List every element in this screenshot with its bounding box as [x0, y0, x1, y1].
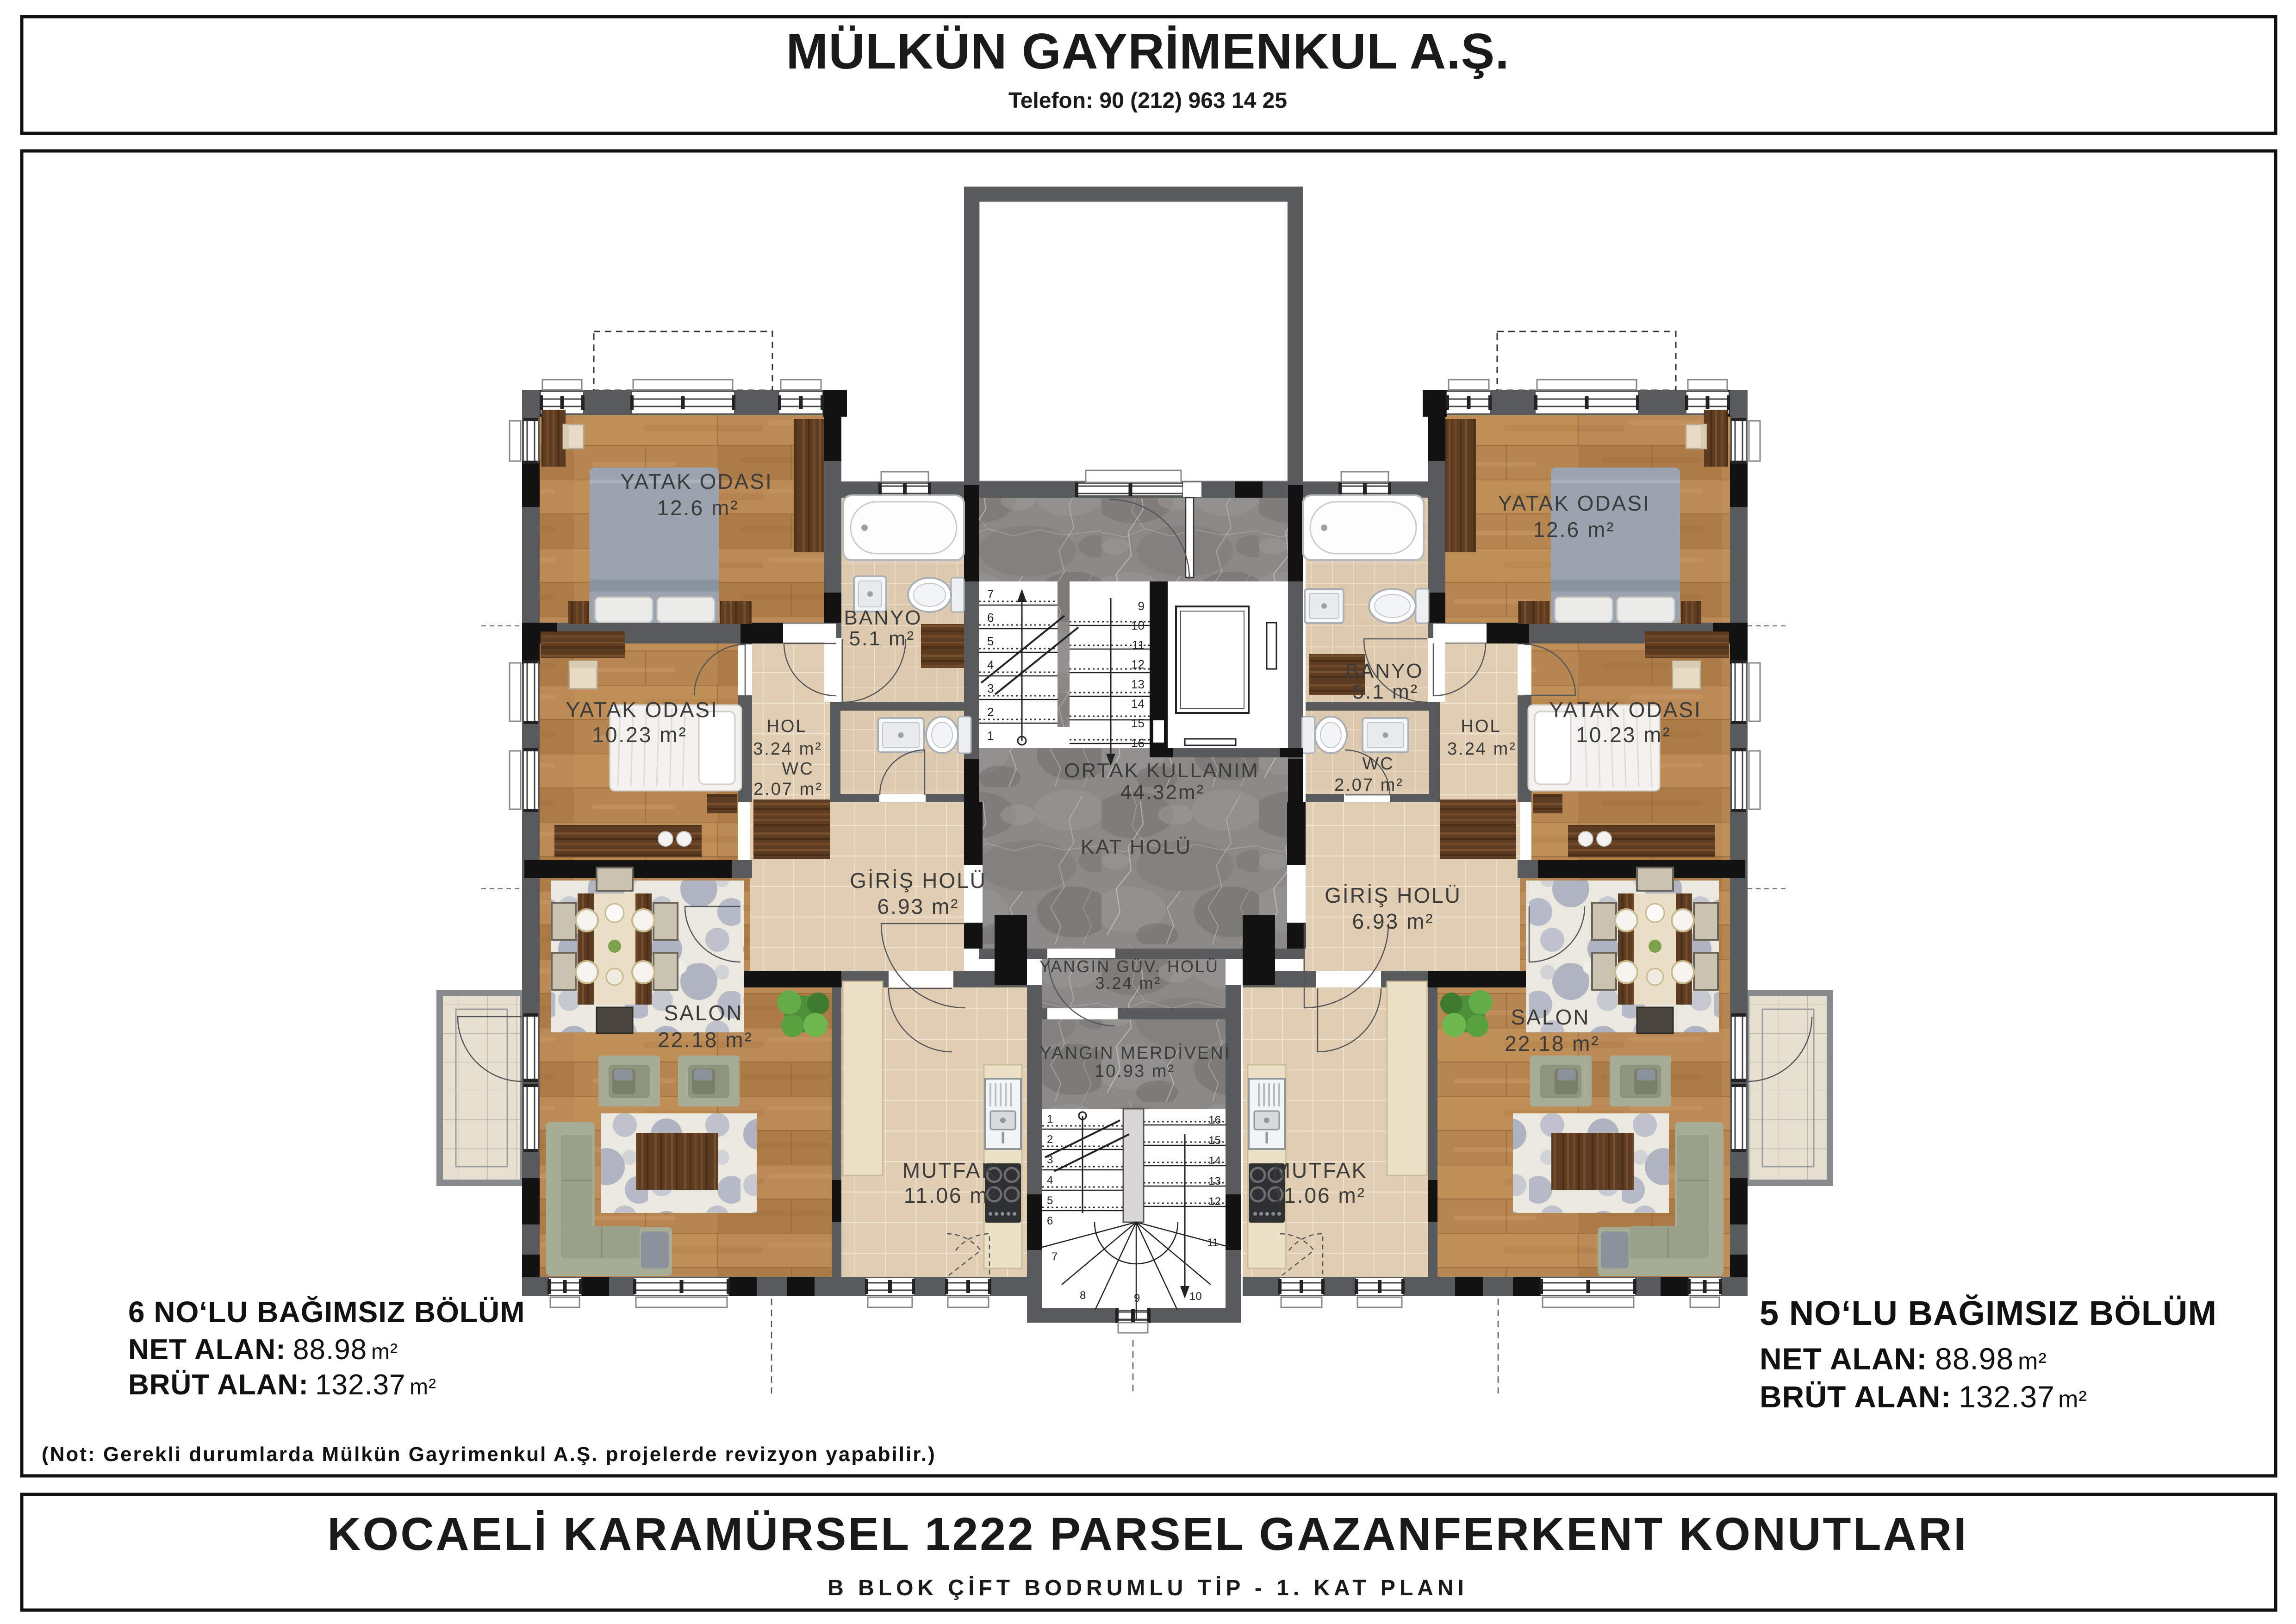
svg-text:16: 16: [1131, 736, 1145, 750]
svg-text:YANGIN GÜV. HOLÜ: YANGIN GÜV. HOLÜ: [1039, 957, 1219, 976]
svg-text:11: 11: [1207, 1237, 1219, 1249]
svg-text:11: 11: [1132, 638, 1145, 652]
svg-text:22.18 m²: 22.18 m²: [1505, 1031, 1600, 1056]
svg-text:6.93 m²: 6.93 m²: [877, 894, 959, 918]
svg-text:SALON: SALON: [664, 1001, 743, 1025]
svg-text:YATAK ODASI: YATAK ODASI: [1549, 698, 1702, 722]
svg-text:10.93 m²: 10.93 m²: [1095, 1062, 1175, 1081]
svg-text:HOL: HOL: [766, 717, 807, 736]
svg-text:MUTFAK: MUTFAK: [1273, 1158, 1368, 1182]
svg-text:10: 10: [1189, 1290, 1202, 1303]
svg-text:4: 4: [1047, 1174, 1053, 1187]
svg-text:BRÜT ALAN:: BRÜT ALAN:: [1760, 1380, 1951, 1414]
svg-text:5.1 m²: 5.1 m²: [849, 627, 915, 650]
svg-text:2.07 m²: 2.07 m²: [753, 780, 823, 799]
svg-text:ORTAK KULLANIM: ORTAK KULLANIM: [1064, 759, 1259, 782]
svg-text:16: 16: [1208, 1114, 1221, 1126]
svg-text:1: 1: [1047, 1113, 1053, 1125]
svg-text:6 NO‘LU BAĞIMSIZ BÖLÜM: 6 NO‘LU BAĞIMSIZ BÖLÜM: [128, 1295, 525, 1329]
svg-text:KOCAELİ KARAMÜRSEL 1222 PARSEL: KOCAELİ KARAMÜRSEL 1222 PARSEL GAZANFERK…: [327, 1508, 1968, 1560]
svg-text:BANYO: BANYO: [1345, 660, 1423, 682]
svg-text:m²: m²: [410, 1375, 436, 1399]
svg-text:NET ALAN:: NET ALAN:: [1760, 1342, 1927, 1376]
svg-text:SALON: SALON: [1511, 1005, 1590, 1029]
svg-text:8: 8: [1080, 1289, 1086, 1302]
svg-text:14: 14: [1208, 1155, 1221, 1167]
svg-text:11.06 m²: 11.06 m²: [1272, 1183, 1366, 1207]
svg-text:MUTFAK: MUTFAK: [902, 1158, 997, 1182]
svg-text:6: 6: [987, 611, 994, 625]
svg-text:3.24 m²: 3.24 m²: [1447, 739, 1517, 759]
svg-text:m²: m²: [371, 1340, 398, 1364]
svg-text:7: 7: [987, 587, 994, 601]
svg-text:6.93 m²: 6.93 m²: [1352, 909, 1434, 933]
svg-text:YANGIN MERDİVENİ: YANGIN MERDİVENİ: [1040, 1043, 1231, 1063]
svg-text:3.24 m²: 3.24 m²: [1095, 974, 1161, 993]
svg-text:7: 7: [1052, 1250, 1058, 1263]
svg-text:132.37: 132.37: [1959, 1380, 2055, 1414]
svg-text:5: 5: [987, 634, 994, 648]
svg-text:B BLOK ÇİFT BODRUMLU TİP - 1.: B BLOK ÇİFT BODRUMLU TİP - 1. KAT PLANI: [828, 1576, 1468, 1600]
svg-text:WC: WC: [1362, 754, 1394, 774]
svg-text:NET ALAN:: NET ALAN:: [128, 1334, 286, 1366]
svg-text:15: 15: [1208, 1134, 1221, 1147]
svg-text:22.18 m²: 22.18 m²: [658, 1028, 753, 1052]
svg-text:m²: m²: [2058, 1386, 2087, 1413]
svg-text:14: 14: [1131, 697, 1145, 711]
svg-text:(Not: Gerekli durumlarda Mülkü: (Not: Gerekli durumlarda Mülkün Gayrimen…: [42, 1443, 936, 1466]
svg-text:GİRİŞ HOLÜ: GİRİŞ HOLÜ: [1325, 883, 1462, 907]
svg-text:12: 12: [1208, 1195, 1221, 1208]
svg-text:3: 3: [987, 681, 994, 695]
svg-text:12: 12: [1131, 657, 1145, 671]
svg-text:5.1 m²: 5.1 m²: [1353, 681, 1419, 703]
svg-text:Telefon: 90 (212) 963 14 25: Telefon: 90 (212) 963 14 25: [1008, 88, 1287, 113]
svg-text:12.6 m²: 12.6 m²: [1533, 518, 1615, 542]
svg-text:15: 15: [1131, 716, 1145, 730]
svg-text:12.6 m²: 12.6 m²: [657, 496, 739, 520]
svg-text:10.23 m²: 10.23 m²: [1576, 723, 1671, 747]
svg-text:BRÜT ALAN:: BRÜT ALAN:: [128, 1369, 309, 1401]
svg-text:9: 9: [1134, 1292, 1140, 1305]
svg-text:2: 2: [1047, 1133, 1053, 1146]
svg-text:10.23 m²: 10.23 m²: [592, 723, 687, 747]
svg-text:6: 6: [1047, 1215, 1053, 1227]
svg-text:5 NO‘LU BAĞIMSIZ BÖLÜM: 5 NO‘LU BAĞIMSIZ BÖLÜM: [1760, 1294, 2217, 1332]
svg-text:YATAK ODASI: YATAK ODASI: [566, 698, 718, 722]
svg-text:m²: m²: [2018, 1348, 2047, 1375]
svg-text:3.24 m²: 3.24 m²: [753, 739, 822, 759]
svg-text:13: 13: [1208, 1175, 1221, 1187]
svg-text:13: 13: [1131, 677, 1145, 691]
svg-text:1: 1: [987, 729, 994, 743]
svg-text:YATAK ODASI: YATAK ODASI: [620, 469, 773, 493]
svg-text:88.98: 88.98: [1935, 1342, 2014, 1376]
svg-text:132.37: 132.37: [315, 1369, 406, 1401]
svg-text:MÜLKÜN GAYRİMENKUL A.Ş.: MÜLKÜN GAYRİMENKUL A.Ş.: [786, 23, 1509, 80]
svg-text:2.07 m²: 2.07 m²: [1334, 775, 1404, 795]
svg-text:WC: WC: [782, 759, 814, 779]
svg-text:BANYO: BANYO: [844, 606, 922, 629]
svg-text:9: 9: [1138, 599, 1145, 613]
svg-text:4: 4: [987, 658, 994, 672]
svg-text:5: 5: [1047, 1194, 1053, 1207]
svg-text:11.06 m²: 11.06 m²: [904, 1183, 997, 1207]
svg-text:HOL: HOL: [1461, 717, 1501, 736]
svg-text:2: 2: [987, 705, 994, 719]
svg-text:88.98: 88.98: [293, 1334, 367, 1366]
svg-text:10: 10: [1131, 618, 1145, 632]
svg-text:44.32m²: 44.32m²: [1120, 781, 1205, 804]
svg-text:YATAK ODASI: YATAK ODASI: [1498, 491, 1650, 515]
svg-text:GİRİŞ HOLÜ: GİRİŞ HOLÜ: [850, 868, 987, 893]
svg-text:KAT HOLÜ: KAT HOLÜ: [1081, 836, 1192, 858]
